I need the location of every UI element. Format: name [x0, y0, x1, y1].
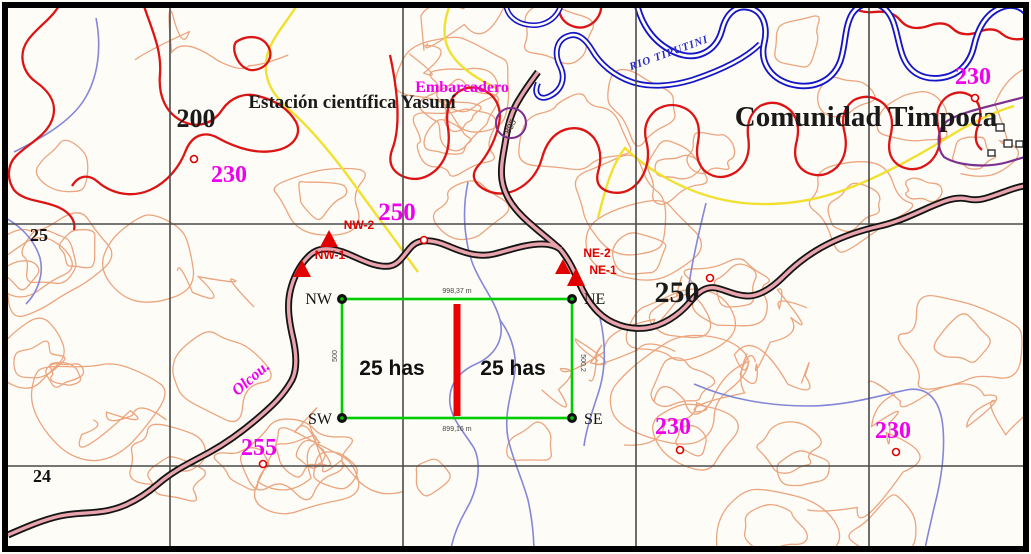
map-background — [0, 0, 1031, 554]
building-icon — [1004, 140, 1012, 147]
corner-point-center — [570, 416, 574, 420]
spot-elevation-icon — [260, 461, 267, 468]
corner-point-center — [570, 297, 574, 301]
contour-label-230-s: 230 — [655, 414, 691, 440]
label-embarcadero: Embarcadero — [415, 79, 509, 96]
marker-label-nw2: NW-2 — [344, 218, 375, 232]
dimension-label-east: 500,2 — [579, 354, 586, 372]
grid-label-25: 25 — [30, 225, 48, 245]
building-icon — [1016, 141, 1023, 147]
spot-elevation-icon — [421, 237, 428, 244]
grid-label-24: 24 — [33, 466, 51, 486]
topographic-map: Estación científica Yasuní Embarcadero C… — [0, 0, 1031, 554]
marker-label-ne2: NE-2 — [583, 246, 611, 260]
contour-label-230-se: 230 — [875, 418, 911, 444]
spot-elevation-icon — [677, 447, 684, 454]
dimension-label-north: 998,37 m — [442, 288, 471, 295]
contour-label-255: 255 — [241, 435, 277, 461]
corner-point-center — [340, 416, 344, 420]
spot-elevation-icon — [191, 156, 198, 163]
corner-label-se: SE — [584, 411, 603, 428]
corner-label-sw: SW — [308, 411, 333, 428]
contour-label-230-ne: 230 — [955, 64, 991, 90]
contour-label-250-e: 250 — [655, 276, 700, 309]
contour-label-200: 200 — [177, 104, 216, 133]
label-comunidad: Comunidad Timpoca — [735, 101, 998, 133]
dimension-label-west: 500 — [332, 350, 339, 362]
corner-label-ne: NE — [584, 291, 605, 308]
spot-elevation-icon — [893, 449, 900, 456]
contour-label-250-nw: 250 — [378, 199, 416, 226]
building-icon — [988, 150, 995, 156]
area-label-west: 25 has — [359, 357, 424, 380]
dimension-label-south: 899,16 m — [442, 426, 471, 433]
area-label-east: 25 has — [480, 357, 545, 380]
contour-label-230-nw: 230 — [211, 162, 247, 188]
corner-label-nw: NW — [305, 291, 333, 308]
marker-label-ne1: NE-1 — [589, 263, 617, 277]
marker-label-nw1: NW-1 — [315, 248, 346, 262]
spot-elevation-icon — [707, 275, 714, 282]
corner-point-center — [340, 297, 344, 301]
